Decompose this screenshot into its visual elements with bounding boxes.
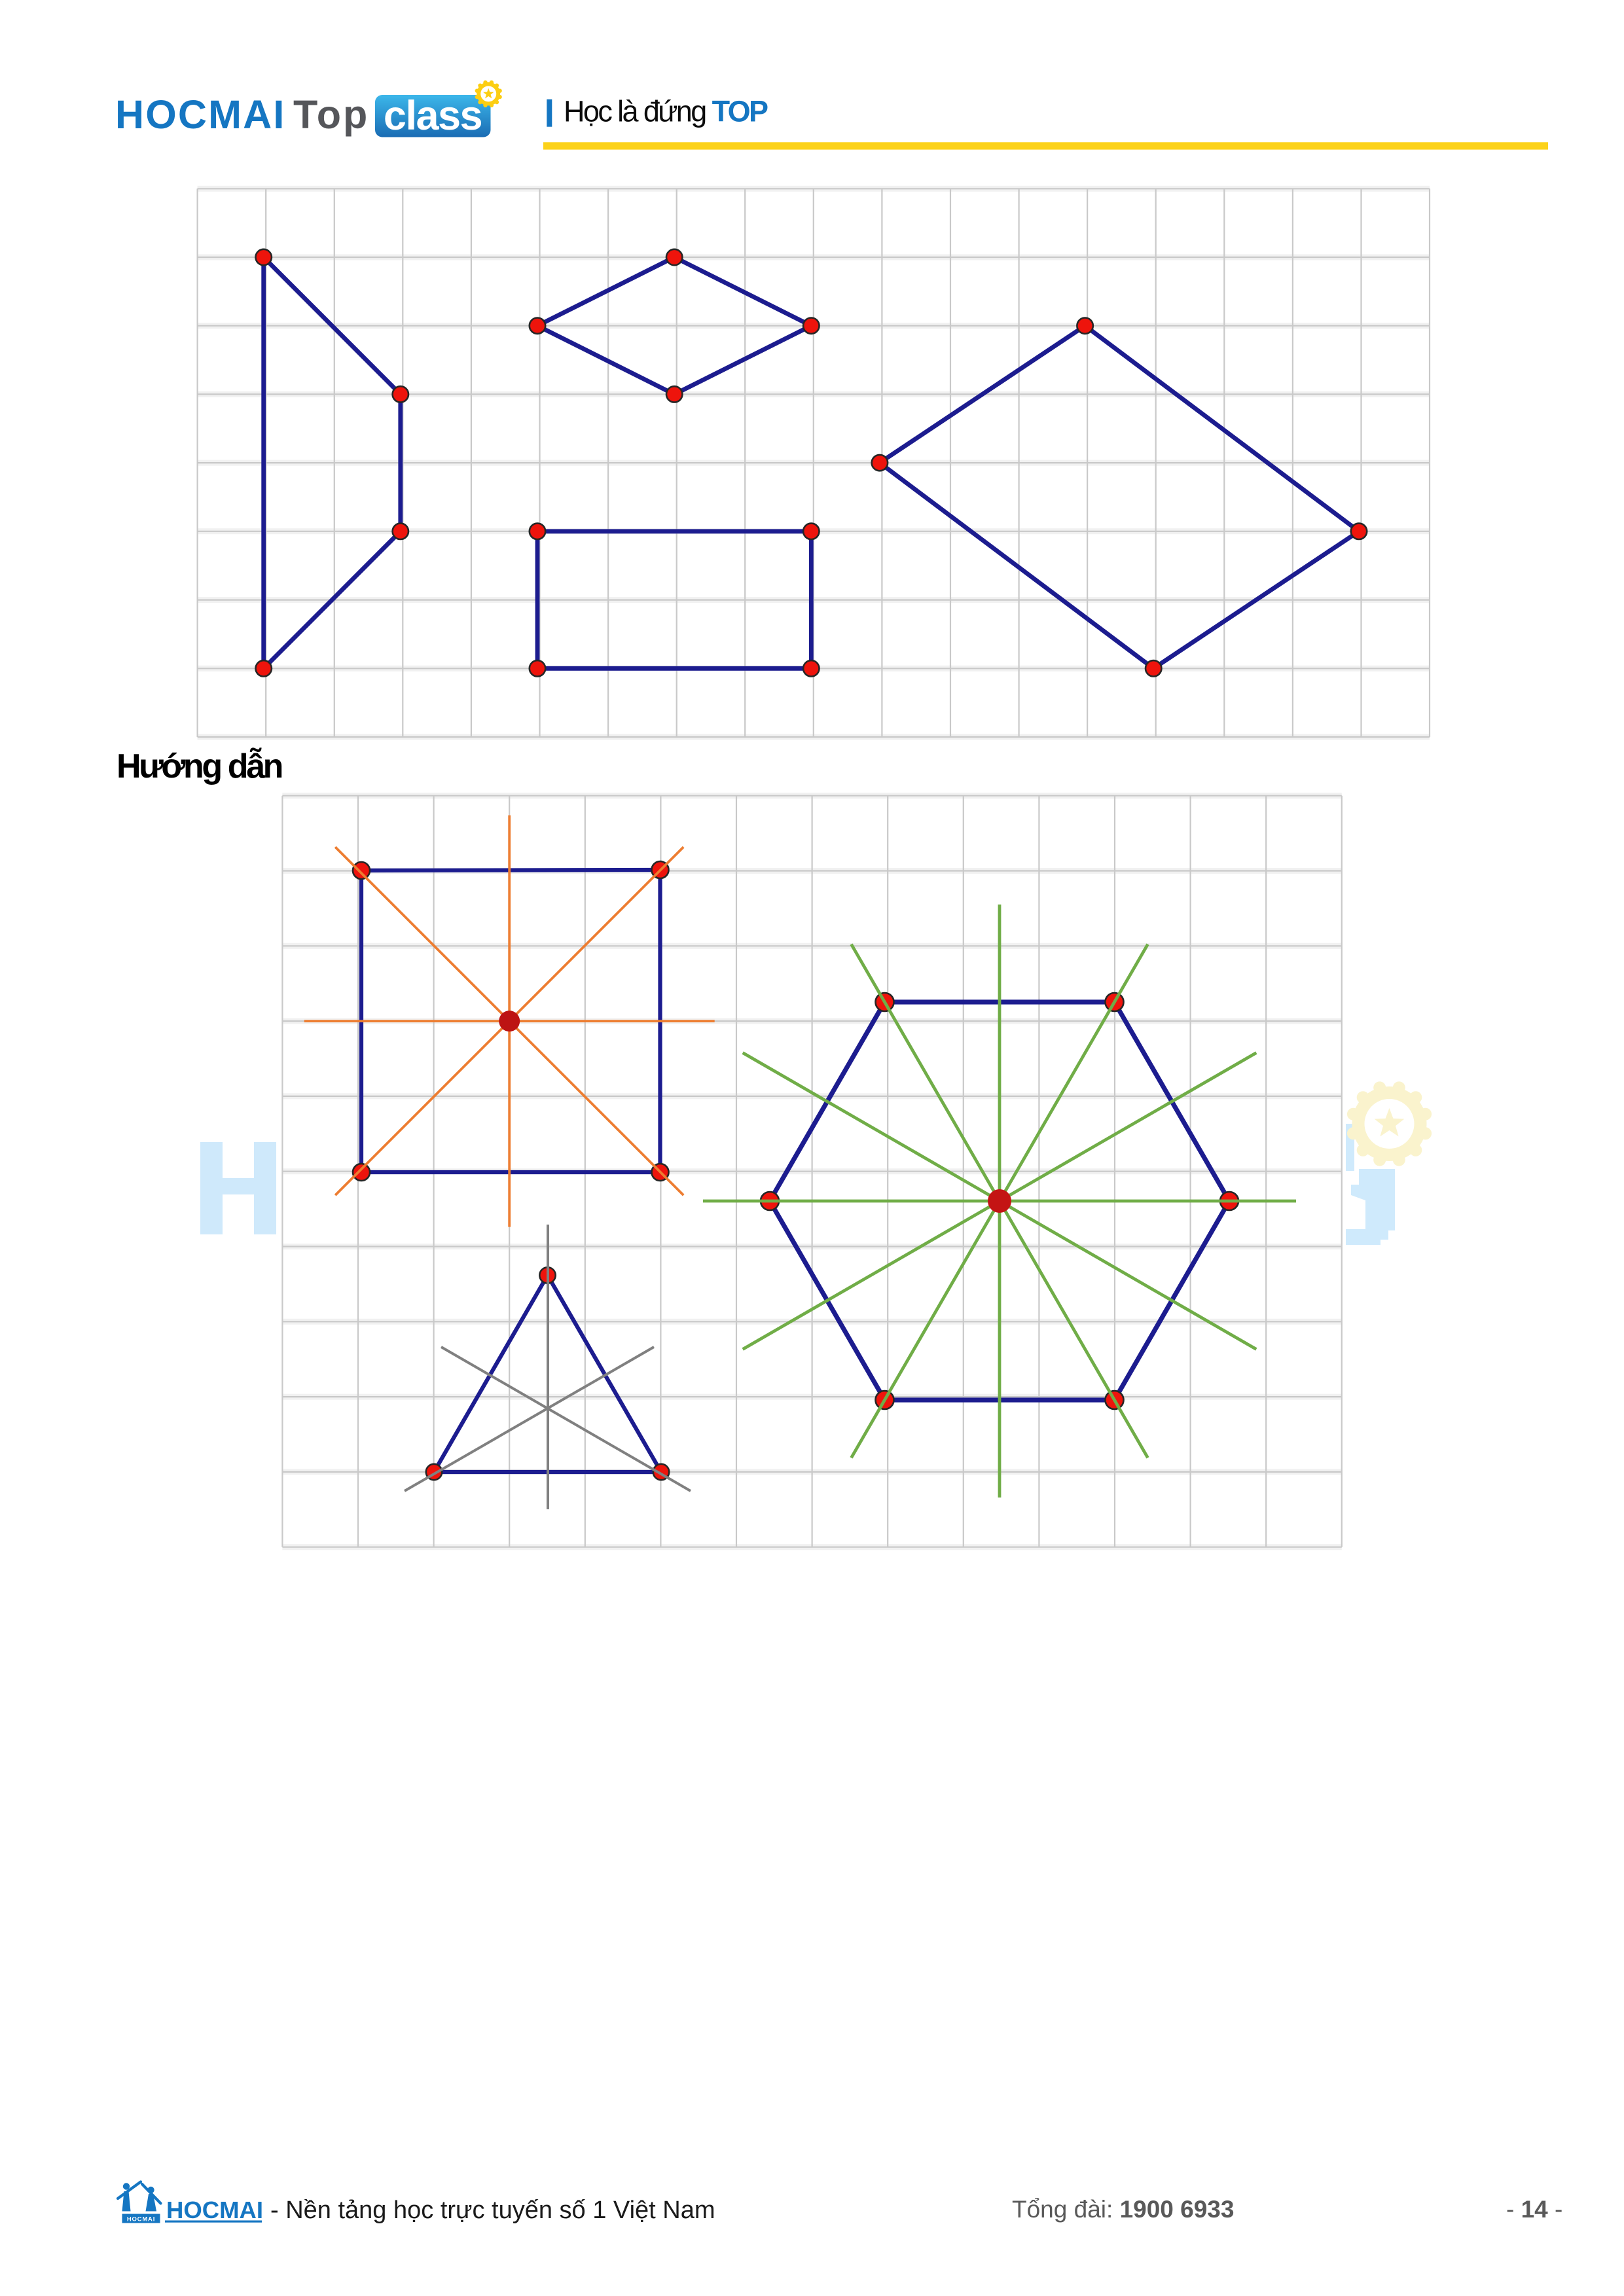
svg-text:Học là đứng TOP: Học là đứng TOP <box>564 94 768 128</box>
svg-text:Hướng dẫn: Hướng dẫn <box>117 747 282 785</box>
svg-text:- 14 -: - 14 - <box>1506 2196 1562 2223</box>
svg-text:HOCMAI: HOCMAI <box>115 92 286 137</box>
svg-text:HOCMAI: HOCMAI <box>127 2216 155 2223</box>
svg-text:Top: Top <box>293 92 369 137</box>
svg-text:HOCMAI: HOCMAI <box>166 2197 263 2223</box>
svg-text:Tổng đài: 1900 6933: Tổng đài: 1900 6933 <box>1012 2196 1234 2223</box>
svg-text:class: class <box>384 93 482 139</box>
svg-text:- Nền tảng học trực tuyến số 1: - Nền tảng học trực tuyến số 1 Việt Nam <box>270 2197 715 2224</box>
